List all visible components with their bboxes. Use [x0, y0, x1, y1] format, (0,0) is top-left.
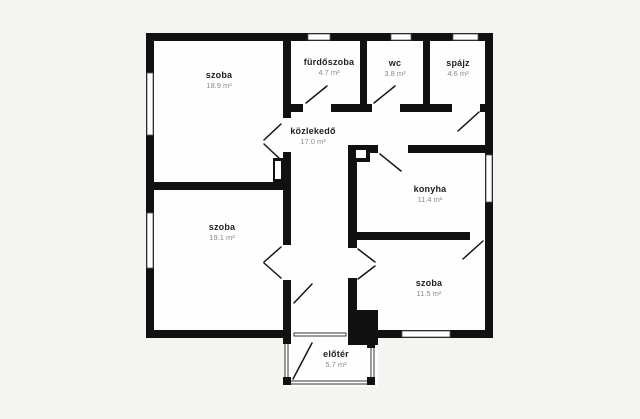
- floorplan-canvas: szoba 18.9 m² fürdőszoba 4.7 m² wc 3.8 m…: [0, 0, 640, 419]
- floorplan-drawing: [0, 0, 640, 419]
